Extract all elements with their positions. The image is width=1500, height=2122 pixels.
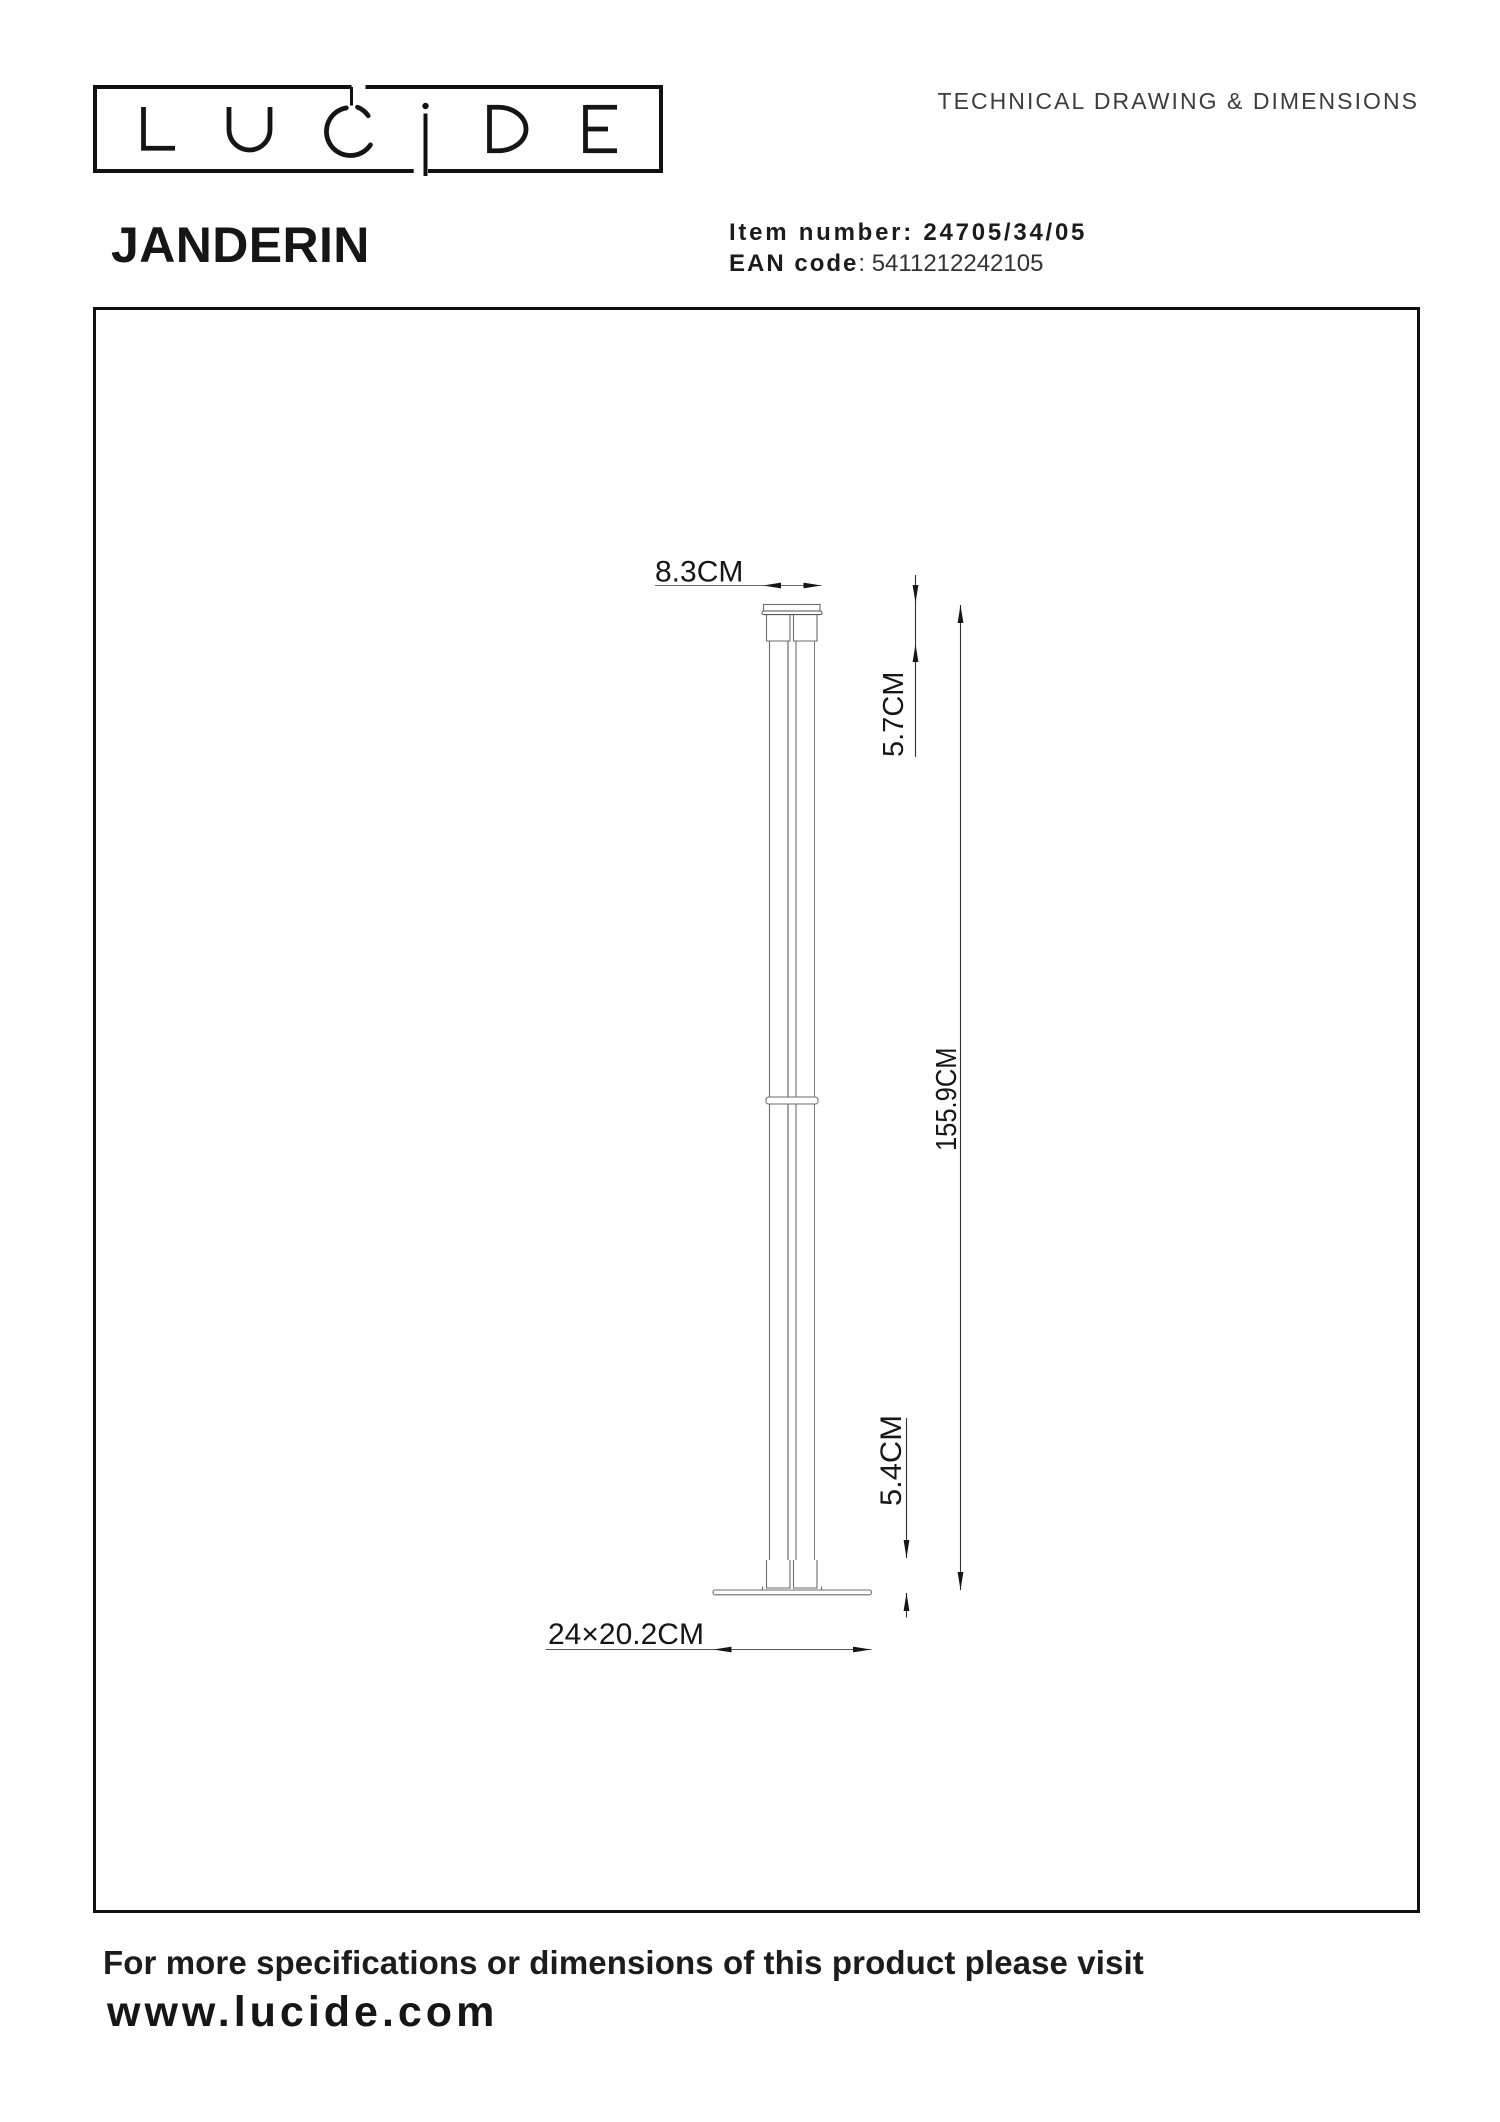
svg-text:5.4CM: 5.4CM [874, 1415, 907, 1506]
svg-text:8.3CM: 8.3CM [655, 556, 743, 589]
svg-text:155.9CM: 155.9CM [929, 1048, 962, 1151]
svg-text:5.7CM: 5.7CM [878, 672, 910, 757]
svg-text:24×20.2CM: 24×20.2CM [548, 1618, 704, 1651]
